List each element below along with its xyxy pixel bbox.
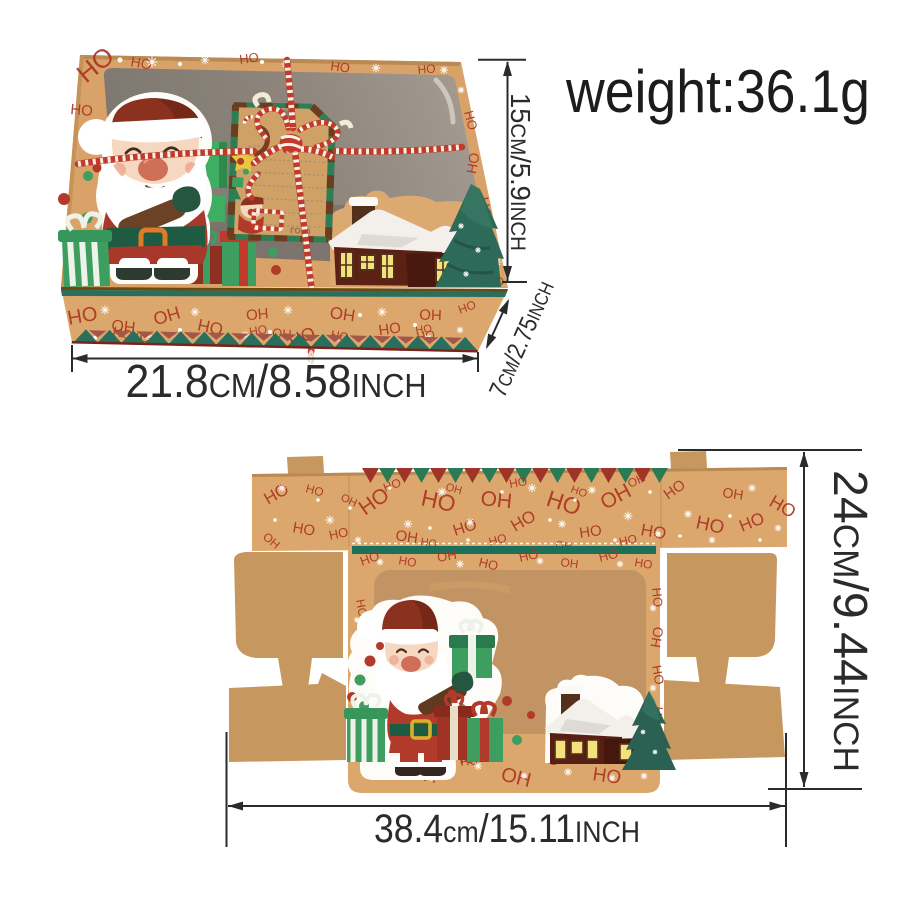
svg-text:HO: HO bbox=[238, 49, 259, 67]
svg-text:OH: OH bbox=[479, 487, 513, 513]
svg-text:HO: HO bbox=[245, 304, 269, 323]
svg-text:OH: OH bbox=[722, 484, 745, 503]
svg-text:OH: OH bbox=[377, 318, 402, 338]
svg-text:HO: HO bbox=[329, 302, 357, 324]
svg-text:HO: HO bbox=[591, 764, 622, 789]
svg-text:HO: HO bbox=[415, 323, 433, 337]
svg-text:HO: HO bbox=[578, 522, 603, 542]
svg-text:HO: HO bbox=[417, 61, 436, 77]
svg-text:HO: HO bbox=[649, 587, 666, 608]
svg-text:OH: OH bbox=[560, 555, 580, 571]
svg-text:HO: HO bbox=[330, 58, 351, 76]
svg-text:weight:36.1g: weight:36.1g bbox=[565, 58, 870, 125]
svg-text:HO: HO bbox=[419, 305, 442, 323]
svg-text:HO: HO bbox=[70, 101, 94, 120]
